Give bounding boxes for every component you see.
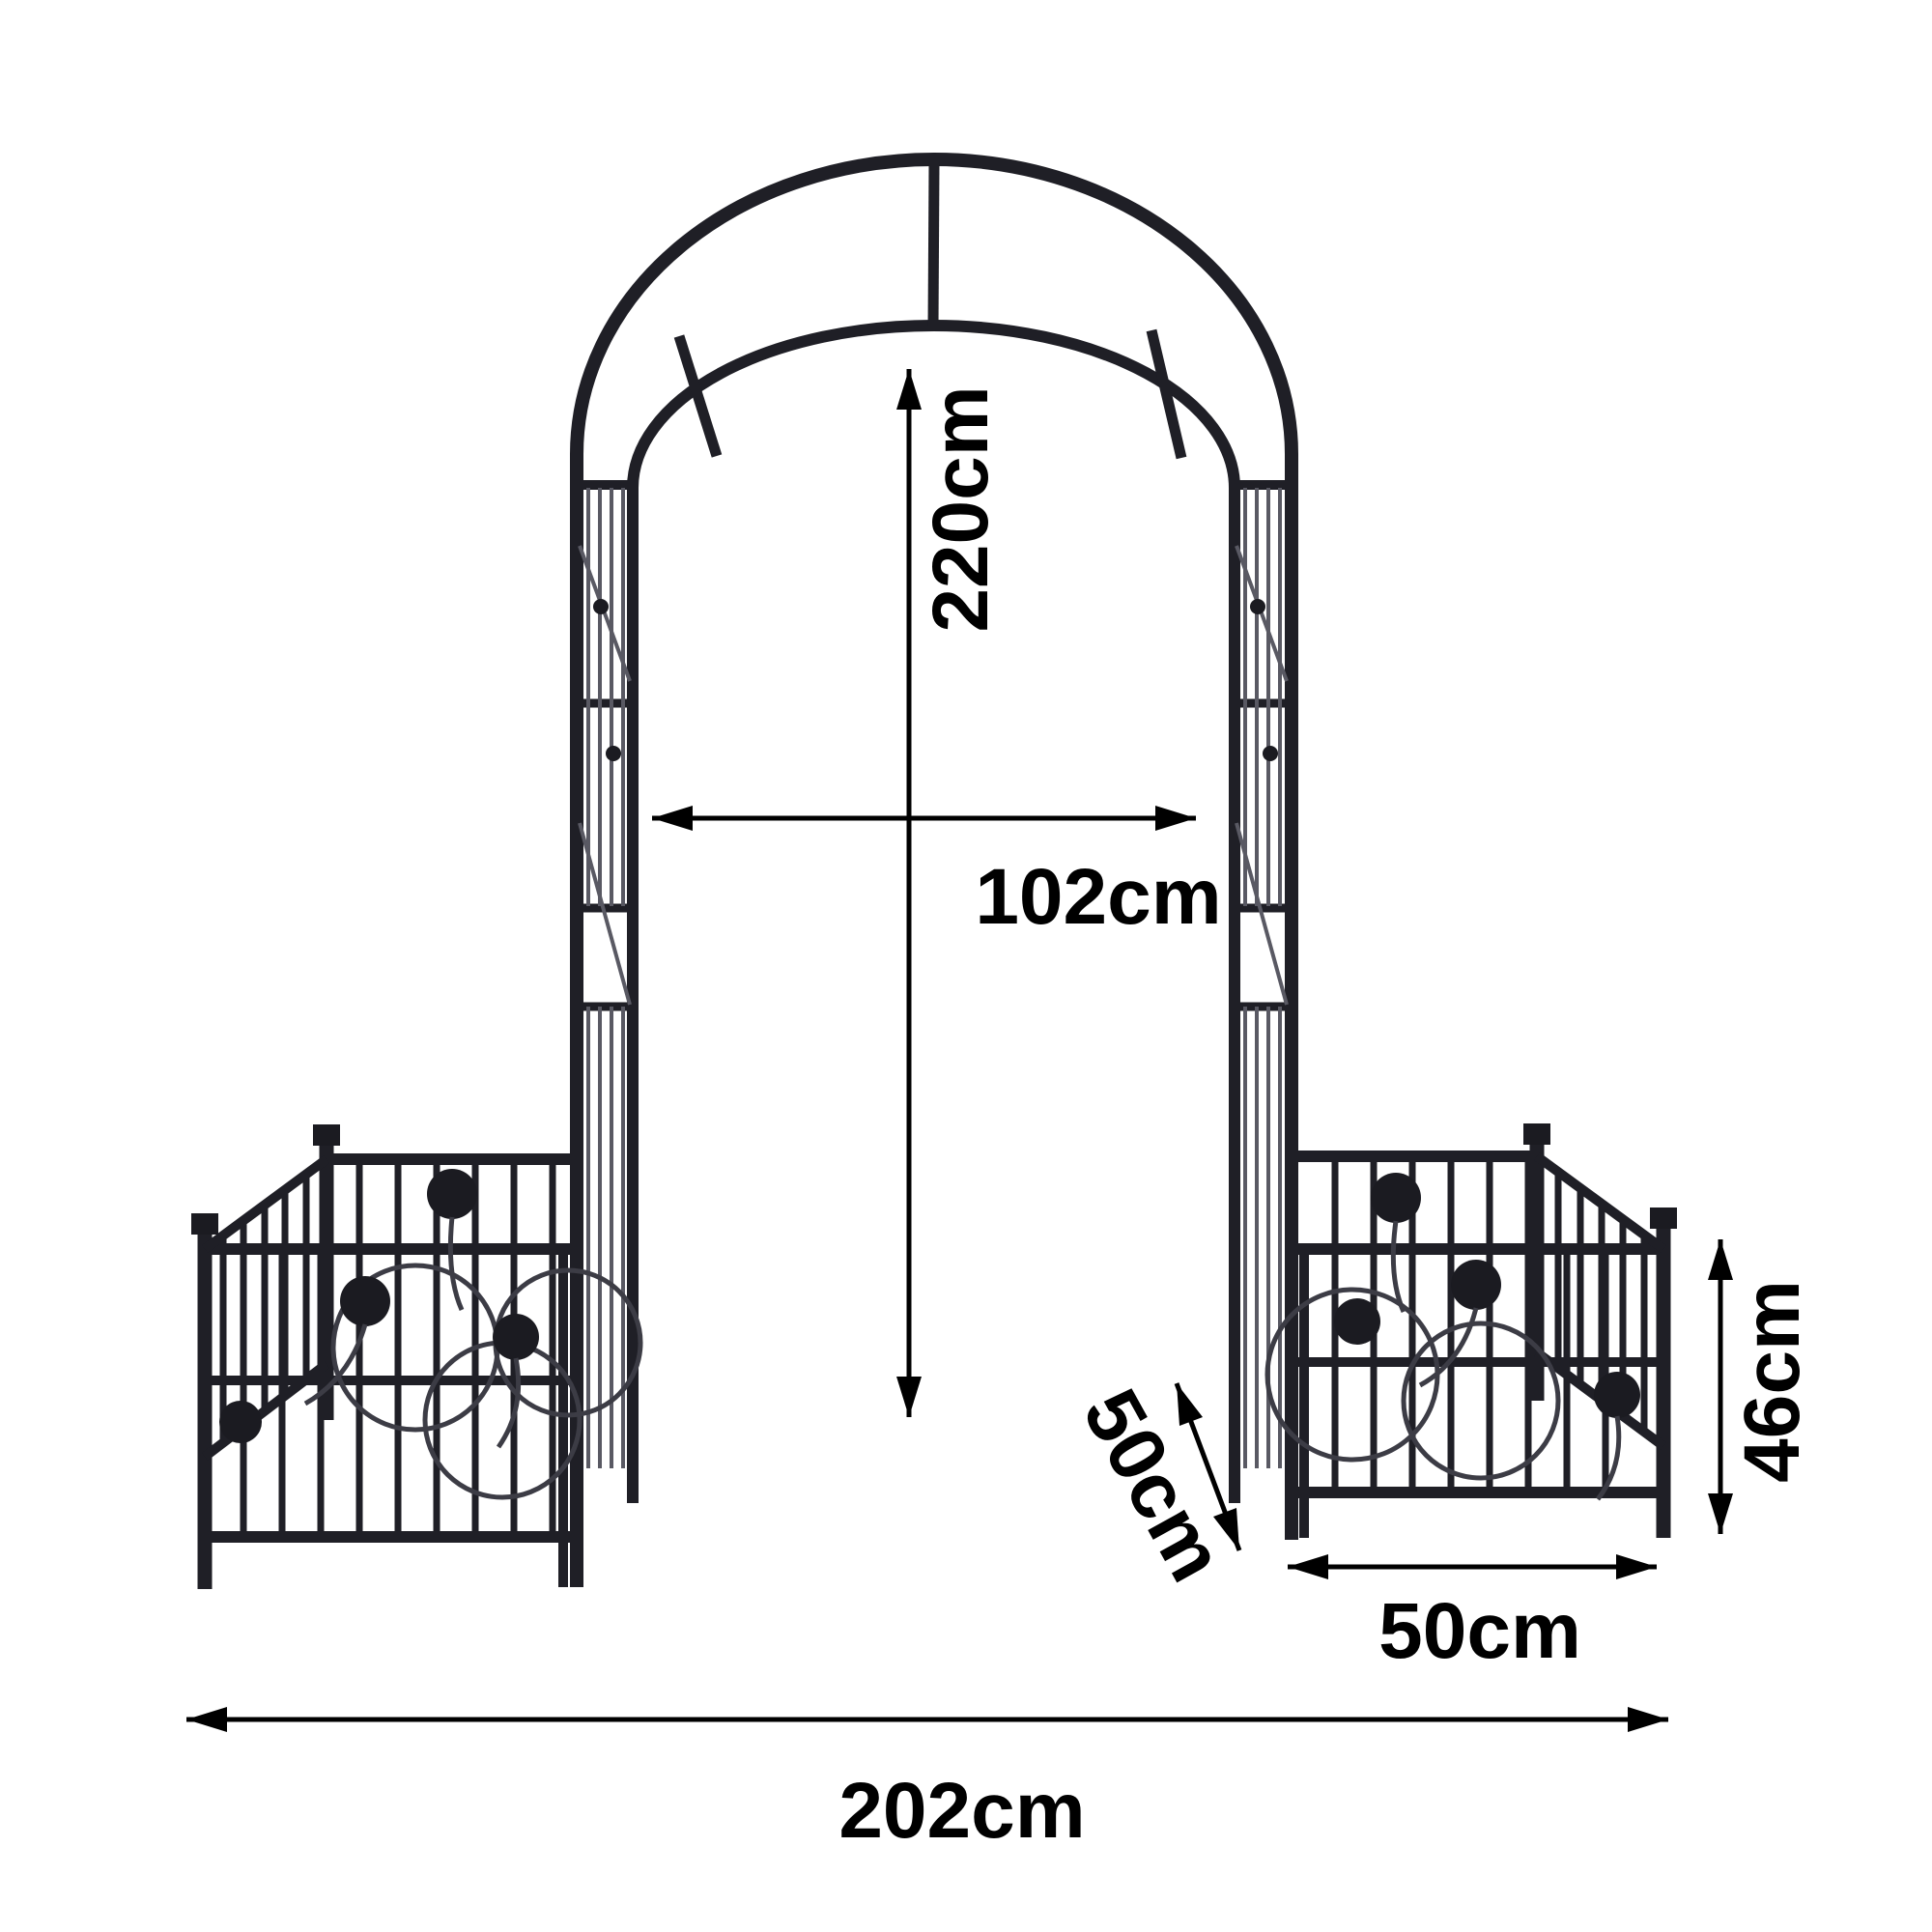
arrow-right-icon bbox=[1628, 1707, 1668, 1732]
right-post-trellis bbox=[1236, 488, 1287, 1468]
height-dimension-label: 220cm bbox=[917, 385, 1005, 632]
arrow-left-icon bbox=[1288, 1554, 1328, 1579]
planter-height-dimension: 46cm bbox=[1708, 1239, 1816, 1534]
planter-depth-dimension: 50cm bbox=[1065, 1376, 1240, 1596]
arrow-left-icon bbox=[652, 806, 693, 831]
arrow-right-icon bbox=[1616, 1554, 1657, 1579]
total-width-dimension-label: 202cm bbox=[838, 1767, 1085, 1855]
right-planter-box bbox=[1267, 1123, 1677, 1538]
arrow-down-icon bbox=[1708, 1493, 1733, 1534]
arrow-right-icon bbox=[1155, 806, 1196, 831]
right-planter-back-balusters bbox=[1335, 1162, 1528, 1244]
right-planter-front-post-cap bbox=[1650, 1207, 1677, 1229]
arrow-up-right-icon bbox=[1177, 1383, 1203, 1426]
inner-width-dimension-label: 102cm bbox=[975, 853, 1221, 941]
planter-height-dimension-label: 46cm bbox=[1728, 1280, 1816, 1483]
planter-width-dimension: 50cm bbox=[1288, 1554, 1657, 1675]
left-planter-rails bbox=[205, 1159, 580, 1587]
left-planter-back-post-cap bbox=[313, 1124, 340, 1146]
right-planter-back-post-cap bbox=[1523, 1123, 1550, 1145]
left-planter-front-post-cap bbox=[191, 1213, 218, 1235]
arrow-down-icon bbox=[896, 1377, 922, 1417]
total-width-dimension: 202cm bbox=[186, 1707, 1668, 1855]
inner-width-dimension: 102cm bbox=[652, 806, 1222, 941]
planter-width-dimension-label: 50cm bbox=[1378, 1587, 1581, 1675]
left-post-trellis bbox=[580, 488, 630, 1468]
garden-arch-dimension-diagram: 220cm 102cm 50cm 46cm 50cm 202cm bbox=[0, 0, 1932, 1932]
arrow-left-icon bbox=[186, 1707, 227, 1732]
arrow-up-icon bbox=[1708, 1239, 1733, 1280]
